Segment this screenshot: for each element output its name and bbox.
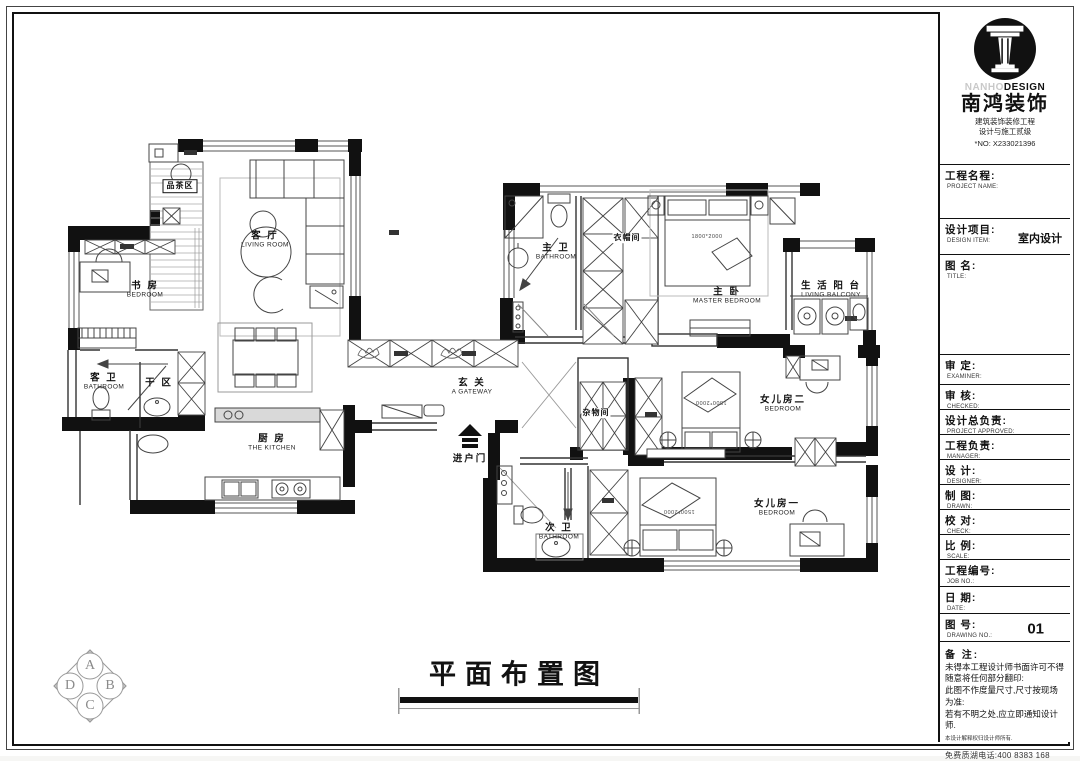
field-drawing-no: 图 号: DRAWING NO.: 01 (940, 614, 1070, 642)
room-label-second-bath: 次 卫BATHROOM (539, 522, 579, 541)
gateway-furniture (382, 405, 444, 418)
note-2: 此图不作度量尺寸,尺寸按现场为准: (945, 685, 1065, 707)
room-label-entry-door: 进户门 (453, 453, 488, 464)
room-label-dry-area: 干 区 (145, 377, 173, 388)
room-label-daughter2: 女儿房二BEDROOM (760, 394, 806, 413)
note-1: 未得本工程设计师书面许可不得随意将任何部分翻印: (945, 662, 1065, 684)
drawing-sheet: { "sheet": { "bottom_title": "平面布置图" }, … (0, 0, 1080, 756)
room-label-master-bath: 主 卫BATHROOM (536, 242, 576, 261)
field-design-item: 设计项目: DESIGN ITEM: 室内设计 (940, 219, 1070, 255)
sheet-title: 平面布置图 (429, 653, 609, 692)
room-label-daughter1: 女儿房一BEDROOM (754, 498, 800, 517)
title-tick-left (398, 688, 399, 714)
title-block: NANHODESIGN 南鸿装饰 建筑装饰装修工程设计与施工贰级 *NO: X2… (938, 12, 1070, 742)
company-logo-icon (974, 18, 1036, 80)
field-title: 图 名: TITLE: (940, 255, 1070, 355)
note-small: 本设计解释权归设计师所有. (945, 734, 1065, 742)
field-project-approved: 设计总负责: PROJECT APPROVED: (940, 410, 1070, 435)
stamp-letter-a: A (85, 658, 95, 674)
room-label-master-bedroom: 主 卧MASTER BEDROOM (693, 286, 761, 305)
field-date: 日 期: DATE: (940, 587, 1070, 614)
room-label-kitchen: 厨 房THE KITCHEN (248, 433, 296, 452)
room-label-study: 书 房BEDROOM (127, 280, 163, 299)
bed-size-master: 1800*2000 (691, 234, 722, 240)
stamp-letter-d: D (65, 678, 75, 694)
note-3: 若有不明之处,应立即通知设计师. (945, 709, 1065, 731)
drawing-number-value: 01 (1027, 620, 1044, 637)
sheet-background: 品茶区 客 厅LIVING ROOM 书 房BEDROOM 客 卫BATHROO… (0, 0, 1080, 756)
bed-size-daughter1: 1500*2000 (663, 508, 694, 514)
room-label-tea-area: 品茶区 (163, 179, 198, 193)
room-label-living: 客 厅LIVING ROOM (241, 230, 289, 249)
daughter1-furniture (624, 478, 844, 556)
balcony-fixtures (790, 296, 868, 334)
field-manager: 工程负责: MANAGER: (940, 435, 1070, 460)
field-checked: 审 核: CHECKED: (940, 385, 1070, 410)
company-subtitle: 建筑装饰装修工程设计与施工贰级 (940, 117, 1070, 137)
title-tick-right (639, 688, 640, 714)
logo-section: NANHODESIGN 南鸿装饰 建筑装饰装修工程设计与施工贰级 *NO: X2… (940, 18, 1070, 165)
company-name: 南鸿装饰 (940, 93, 1070, 115)
field-project-name: 工程名程: PROJECT NAME: (940, 165, 1070, 219)
entry-door-icon (458, 424, 482, 448)
title-underline (398, 688, 640, 714)
room-label-cloakroom: 衣帽间 (613, 233, 642, 243)
field-examiner: 审 定: EXAMINER: (940, 355, 1070, 385)
second-bath-fixtures (497, 466, 583, 560)
room-label-guest-bath: 客 卫BATHROOM (84, 372, 124, 391)
bed-size-daughter2: 1500*2000 (695, 399, 726, 405)
logo-wordmark: NANHODESIGN (940, 82, 1070, 93)
field-scale: 比 例: SCALE: (940, 535, 1070, 560)
room-label-gateway: 玄 关A GATEWAY (452, 377, 493, 396)
room-label-storage: 杂物间 (582, 408, 611, 418)
stamp-letter-b: B (105, 678, 114, 694)
notes-section: 备 注: 未得本工程设计师书面许可不得随意将任何部分翻印: 此图不作度量尺寸,尺… (940, 642, 1070, 748)
field-designer: 设 计: DESIGNER: (940, 460, 1070, 485)
dining-furniture (218, 323, 312, 392)
field-check: 校 对: CHECK: (940, 510, 1070, 535)
room-label-balcony: 生 活 阳 台LIVING BALCONY (801, 280, 861, 299)
stamp-letter-c: C (85, 698, 94, 714)
field-drawn: 制 图: DRAWN: (940, 485, 1070, 510)
kitchen-fixtures (205, 408, 340, 500)
license-number: *NO: X233021396 (940, 139, 1070, 148)
field-job-no: 工程编号: JOB NO.: (940, 560, 1070, 587)
design-item-value: 室内设计 (1018, 230, 1062, 246)
